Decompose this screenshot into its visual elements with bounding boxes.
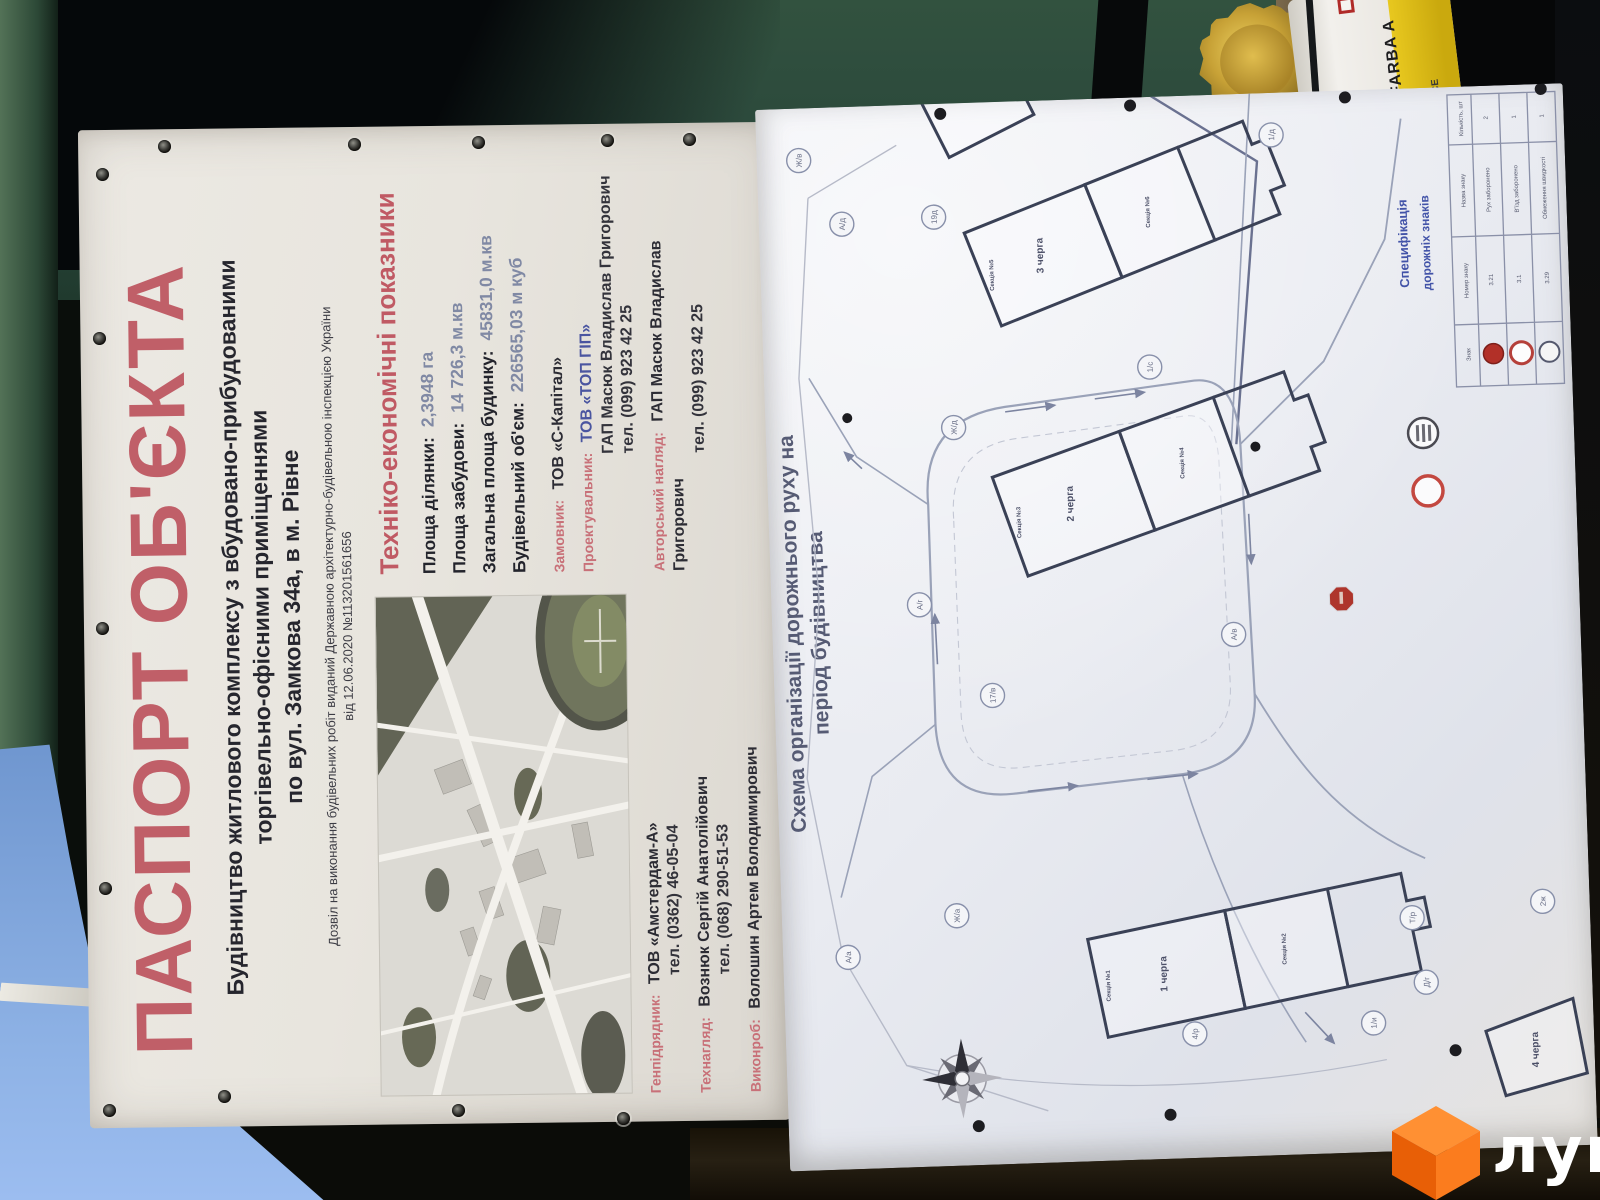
grommet-icon bbox=[472, 136, 485, 149]
passport-banner: ПАСПОРТ ОБ'ЄКТА Будівництво житлового ко… bbox=[78, 122, 790, 1128]
contractor-phone: тел. (0362) 46-05-04 bbox=[661, 593, 688, 1093]
author-supervision-phone: тел. (099) 923 42 25 bbox=[686, 151, 712, 571]
svg-text:1: 1 bbox=[1512, 114, 1518, 118]
lun-logo-text: лун bbox=[1492, 1114, 1600, 1188]
plan-node: А/а bbox=[836, 945, 861, 970]
svg-text:Секція №2: Секція №2 bbox=[1281, 933, 1289, 965]
designer-label: Проектувальник: bbox=[579, 453, 596, 573]
indicator-row: Площа забудови: 14 726,3 м.кв bbox=[444, 154, 470, 574]
building-phase1 bbox=[1088, 870, 1439, 1038]
svg-text:19д: 19д bbox=[929, 210, 938, 224]
indicator-value: 226565,03 м куб bbox=[505, 257, 527, 392]
spec-sign-ring-icon bbox=[1510, 341, 1533, 364]
svg-text:3.29: 3.29 bbox=[1545, 271, 1551, 284]
designer-phone: тел. (099) 923 42 25 bbox=[616, 151, 642, 571]
svg-text:Секція №6: Секція №6 bbox=[1144, 196, 1152, 228]
plan-title: Схема організації дорожнього руху на пер… bbox=[775, 434, 837, 833]
plan-node: 2ж bbox=[1530, 889, 1555, 914]
svg-text:Обмеження швидкості: Обмеження швидкості bbox=[1541, 157, 1549, 219]
sign-bar bbox=[1416, 425, 1420, 441]
grommet-icon bbox=[348, 138, 361, 151]
plan-node: Д/г bbox=[1414, 970, 1439, 995]
plan-node: А/г bbox=[907, 592, 932, 617]
site-plan-drawing: Схема організації дорожнього руху на пер… bbox=[755, 83, 1598, 1171]
indicator-value: 14 726,3 м.кв bbox=[446, 302, 467, 413]
foreman-label: Виконроб: bbox=[747, 1019, 764, 1092]
no-entry-sign-icon bbox=[1413, 475, 1444, 506]
plan-node: 1/д bbox=[1259, 123, 1284, 148]
passport-subtitle: Будівництво житлового комплексу з вбудов… bbox=[211, 187, 313, 1066]
indicators-heading: Техніко-економічні показники bbox=[369, 154, 405, 574]
compass-rose-icon bbox=[918, 1035, 1006, 1123]
contractor-block: Генпідрядник: ТОВ «Амстердам-А» тел. (03… bbox=[641, 592, 767, 1093]
lun-logo: лун bbox=[1388, 1104, 1600, 1200]
contractor-label: Генпідрядник: bbox=[646, 994, 663, 1093]
author-supervision-entry: Авторський нагляд: ГАП Масюк Владислав Г… bbox=[645, 151, 712, 572]
svg-text:Кількість, шт: Кількість, шт bbox=[1458, 101, 1465, 137]
indicator-row: Площа ділянки: 2,3948 га bbox=[414, 154, 440, 574]
svg-text:Знак: Знак bbox=[1466, 348, 1472, 361]
building-phase2 bbox=[992, 367, 1333, 576]
indicator-label: Загальна площа будинку: bbox=[477, 350, 500, 573]
svg-text:Ж/д: Ж/д bbox=[949, 420, 958, 435]
svg-text:2: 2 bbox=[1484, 115, 1490, 119]
indicator-row: Будівельний об'єм: 226565,03 м куб bbox=[504, 153, 530, 573]
svg-text:3.1: 3.1 bbox=[1517, 274, 1523, 283]
svg-text:2 черга: 2 черга bbox=[1065, 485, 1077, 521]
aerial-photo-art bbox=[376, 594, 633, 1096]
svg-text:17/в: 17/в bbox=[988, 688, 998, 704]
svg-text:А/а: А/а bbox=[844, 951, 853, 964]
plan-node: 19д bbox=[921, 205, 946, 230]
svg-text:2ж: 2ж bbox=[1538, 896, 1547, 907]
svg-text:1 черга: 1 черга bbox=[1158, 956, 1170, 992]
grommet-icon bbox=[103, 1104, 116, 1117]
passport-right-column: Техніко-економічні показники Площа ділян… bbox=[369, 150, 769, 575]
building-phase3 bbox=[964, 116, 1294, 326]
grommet-icon bbox=[99, 882, 112, 895]
contractor-org: ТОВ «Амстердам-А» bbox=[644, 822, 663, 984]
grommet-icon bbox=[452, 1104, 465, 1117]
svg-text:3 черга: 3 черга bbox=[1034, 237, 1046, 273]
svg-text:Ж/в: Ж/в bbox=[794, 153, 803, 167]
grommet-icon bbox=[96, 168, 109, 181]
svg-text:Секція №3: Секція №3 bbox=[1015, 506, 1023, 538]
contractor-entry: Генпідрядник: ТОВ «Амстердам-А» тел. (03… bbox=[641, 593, 688, 1093]
svg-text:Секція №4: Секція №4 bbox=[1178, 447, 1186, 479]
site-plan-sheet: Схема організації дорожнього руху на пер… bbox=[755, 83, 1598, 1171]
plan-node: Ж/а bbox=[944, 903, 969, 928]
foreman-person: Волошин Артем Володимирович bbox=[743, 746, 763, 1009]
grommet-icon bbox=[601, 134, 614, 147]
svg-text:Рух заборонено: Рух заборонено bbox=[1485, 167, 1492, 212]
permit-text: Дозвіл на виконання будівельних робіт ви… bbox=[315, 167, 362, 1086]
building-outlines bbox=[918, 83, 1588, 1114]
svg-text:4 черга: 4 черга bbox=[1530, 1031, 1542, 1067]
svg-text:3.21: 3.21 bbox=[1489, 273, 1495, 286]
spec-table: Специфікація дорожніх знаків Кількість, … bbox=[1391, 91, 1565, 388]
stop-sign-glyph bbox=[1339, 592, 1343, 604]
indicator-row: Загальна площа будинку: 45831,0 м.кв bbox=[474, 153, 500, 573]
svg-text:1: 1 bbox=[1540, 113, 1546, 117]
svg-text:Т/р: Т/р bbox=[1408, 911, 1417, 923]
designer-org: ТОВ «ТОП ГІП» bbox=[578, 324, 596, 443]
author-supervision-label: Авторський нагляд: bbox=[649, 432, 667, 571]
tech-supervision-entry: Технагляд: Вознюк Сергій Анатолійович те… bbox=[691, 592, 738, 1092]
svg-text:Назва знаку: Назва знаку bbox=[1461, 174, 1468, 208]
plan-node: Ж/в bbox=[786, 148, 811, 173]
grommet-icon bbox=[93, 332, 106, 345]
indicator-value: 45831,0 м.кв bbox=[475, 235, 496, 341]
svg-text:1/и: 1/и bbox=[1369, 1017, 1378, 1028]
plan-node: 4/р bbox=[1182, 1022, 1207, 1047]
plan-node: А/д bbox=[829, 212, 854, 237]
grommet-icon bbox=[683, 133, 696, 146]
parties-block: Замовник: ТОВ «С-Капітал» Проектувальник… bbox=[545, 151, 711, 573]
lun-cube-icon bbox=[1388, 1104, 1484, 1200]
customer-label: Замовник: bbox=[550, 500, 567, 573]
plan-node: 17/в bbox=[980, 683, 1005, 708]
plan-node: А/в bbox=[1221, 622, 1246, 647]
grommet-icon bbox=[96, 622, 109, 635]
customer-entry: Замовник: ТОВ «С-Капітал» bbox=[545, 152, 571, 572]
sign-bar bbox=[1428, 425, 1432, 441]
customer-value: ТОВ «С-Капітал» bbox=[549, 357, 568, 490]
svg-text:Секція №1: Секція №1 bbox=[1105, 969, 1113, 1001]
designer-entry: Проектувальник: ТОВ «ТОП ГІП» ГАП Масюк … bbox=[575, 151, 642, 572]
plan-node: 1/с bbox=[1137, 355, 1162, 380]
grommet-icon bbox=[617, 1112, 630, 1125]
passport-body: Генпідрядник: ТОВ «Амстердам-А» тел. (03… bbox=[369, 150, 776, 1097]
plan-traffic-signs bbox=[1324, 417, 1447, 611]
passport-title: ПАСПОРТ ОБ'ЄКТА bbox=[108, 129, 211, 1056]
grommet-icon bbox=[218, 1090, 231, 1103]
svg-text:1/д: 1/д bbox=[1267, 129, 1276, 141]
svg-text:Схема організації дорожнього р: Схема організації дорожнього руху на bbox=[775, 435, 811, 834]
svg-text:період будівництва: період будівництва bbox=[804, 531, 834, 736]
svg-text:Номер знаку: Номер знаку bbox=[1463, 263, 1470, 298]
spec-title: Специфікація bbox=[1394, 199, 1412, 288]
svg-text:4/р: 4/р bbox=[1191, 1028, 1200, 1040]
aerial-photo bbox=[375, 594, 633, 1097]
indicator-label: Площа забудови: bbox=[447, 423, 469, 574]
construction-fence-photo: FARBA A CE ПАСПОРТ ОБ'ЄКТА Будівництво ж… bbox=[0, 0, 1600, 1200]
plan-node: Ж/д bbox=[941, 415, 966, 440]
tech-supervision-phone: тел. (068) 290-51-53 bbox=[711, 592, 738, 1092]
plan-node: Т/р bbox=[1400, 905, 1425, 930]
svg-text:1/с: 1/с bbox=[1146, 362, 1155, 373]
paint-can-logo-icon bbox=[1337, 0, 1355, 14]
tech-supervision-person: Вознюк Сергій Анатолійович bbox=[694, 776, 714, 1007]
passport-left-column: Генпідрядник: ТОВ «Амстердам-А» тел. (03… bbox=[375, 592, 776, 1097]
grommet-icon bbox=[158, 140, 171, 153]
svg-text:В'їзд заборонено: В'їзд заборонено bbox=[1513, 164, 1521, 212]
passport-banner-content: ПАСПОРТ ОБ'ЄКТА Будівництво житлового ко… bbox=[78, 122, 790, 1128]
svg-text:Ж/а: Ж/а bbox=[953, 908, 962, 923]
svg-text:А/д: А/д bbox=[838, 218, 847, 231]
indicator-value: 2,3948 га bbox=[417, 352, 438, 428]
svg-text:А/в: А/в bbox=[1229, 628, 1238, 640]
indicator-label: Площа ділянки: bbox=[418, 437, 440, 574]
spec-title: дорожніх знаків bbox=[1417, 195, 1434, 291]
tech-supervision-label: Технагляд: bbox=[697, 1017, 714, 1093]
plan-node: 1/и bbox=[1361, 1011, 1386, 1036]
svg-text:Д/г: Д/г bbox=[1422, 977, 1431, 988]
svg-text:А/г: А/г bbox=[915, 599, 924, 610]
spec-sign-red-icon bbox=[1483, 343, 1504, 364]
sign-bar bbox=[1422, 424, 1426, 442]
spec-sign-gray-icon bbox=[1539, 341, 1560, 362]
foreman-entry: Виконроб: Волошин Артем Володимирович bbox=[740, 592, 767, 1092]
svg-text:Секція №5: Секція №5 bbox=[988, 259, 996, 291]
indicator-label: Будівельний об'єм: bbox=[507, 402, 529, 573]
